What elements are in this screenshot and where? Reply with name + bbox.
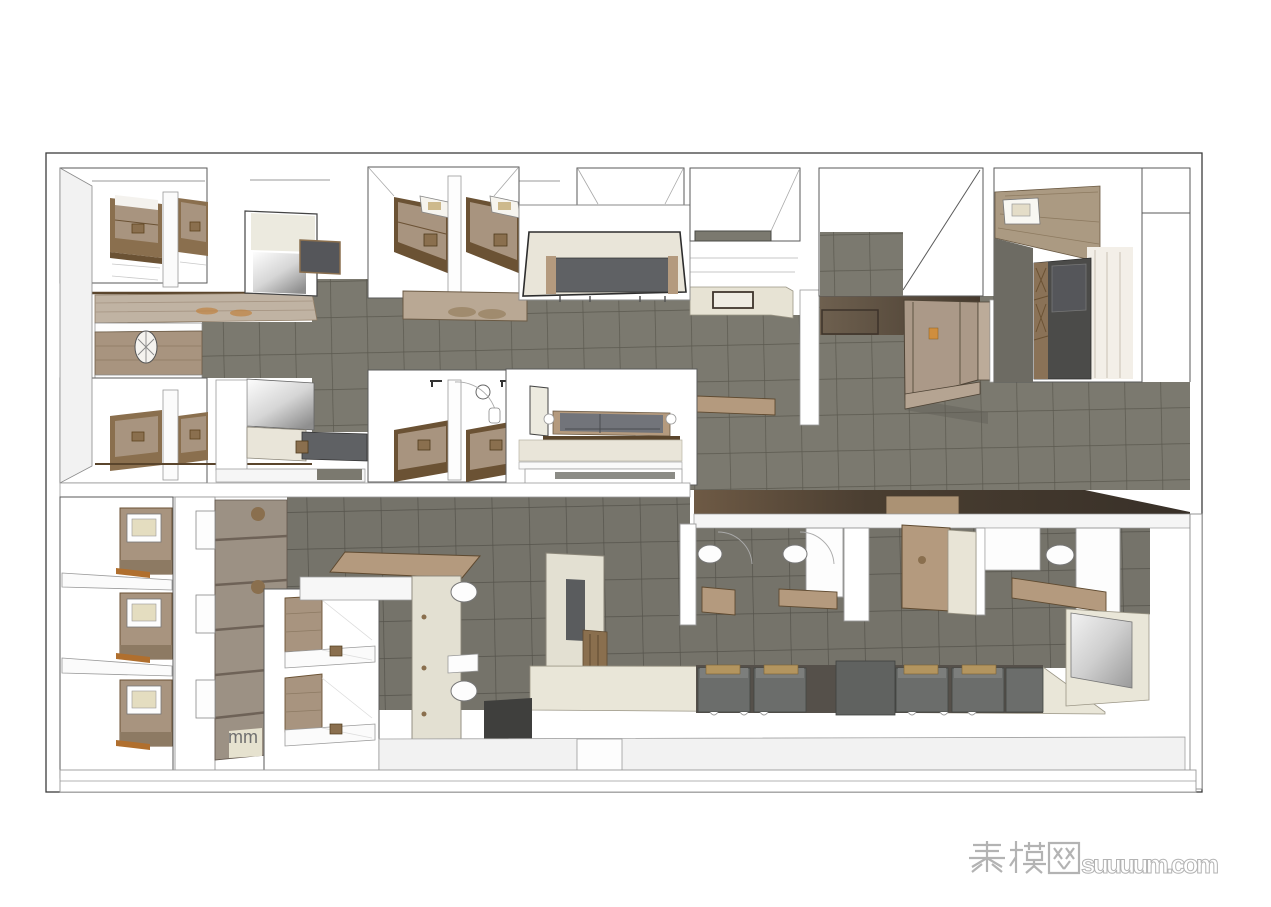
svg-text:mm: mm [228, 727, 258, 747]
svg-text:suuuum.com: suuuum.com [1081, 849, 1219, 879]
